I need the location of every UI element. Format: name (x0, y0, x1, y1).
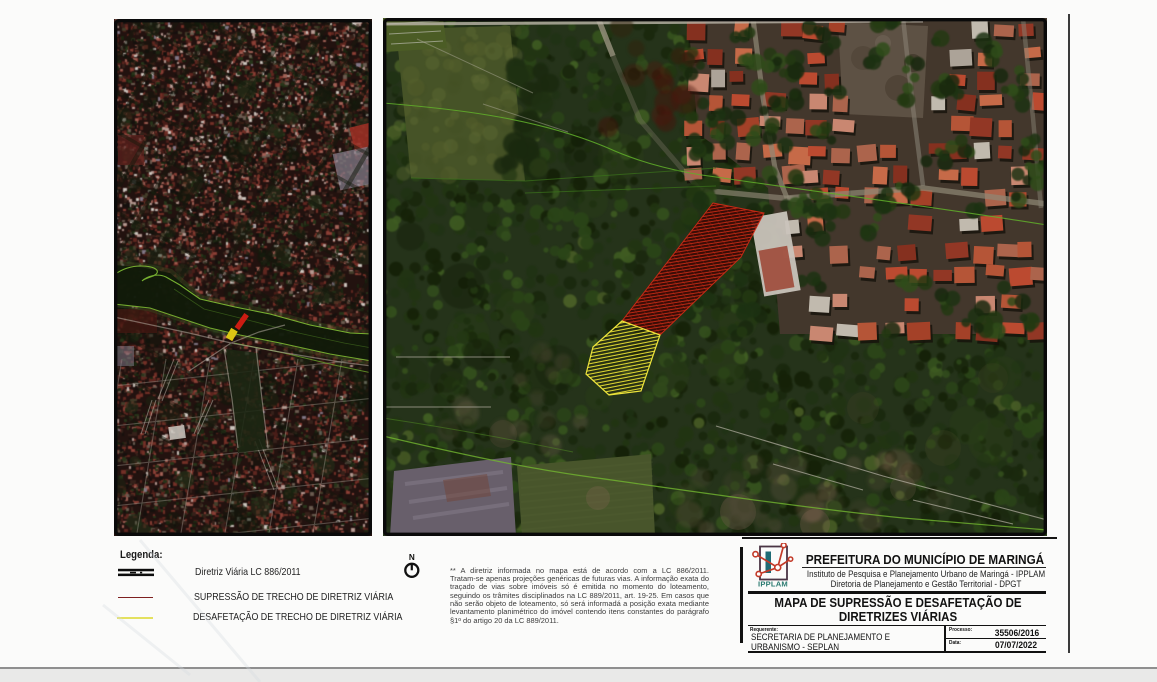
svg-text:IPPLAM: IPPLAM (758, 580, 788, 589)
svg-text:N: N (409, 553, 415, 562)
